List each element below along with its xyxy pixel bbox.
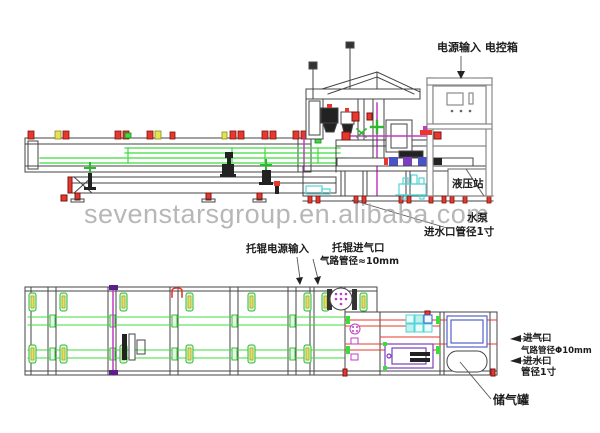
side-view <box>25 42 493 203</box>
label-roller-air-pipe: 气路管径≈10mm <box>319 255 399 267</box>
label-roller-power: 托辊电源输入 <box>246 242 309 255</box>
label-air-tank: 储气罐 <box>493 392 529 407</box>
pneumatic-grid <box>406 315 432 332</box>
machine-drawing-page: sevenstarsgroup.en.alibaba.com 电源输入 电控箱 … <box>0 0 600 433</box>
label-water-inlet-pipe: 管径1寸 <box>521 366 557 378</box>
label-roller-air-inlet: 托辊进气口 <box>332 241 385 254</box>
plan-view <box>25 285 497 376</box>
air-tank-oval <box>447 351 487 372</box>
control-box-top <box>447 316 487 347</box>
cutting-section <box>343 311 497 376</box>
watermark-text: sevenstarsgroup.en.alibaba.com <box>84 199 489 229</box>
label-water-pump-pipe: 进水口管径1寸 <box>424 225 495 238</box>
blower-circle <box>327 288 357 310</box>
saw-carriage <box>383 342 433 370</box>
infeed-conveyor <box>25 138 311 172</box>
machine-diagram: sevenstarsgroup.en.alibaba.com 电源输入 电控箱 … <box>0 0 600 433</box>
label-air-inlet: 进气口 <box>523 332 552 344</box>
label-water-inlet: 进水口 <box>523 355 552 367</box>
label-air-inlet-pipe: 气路管径Φ10mm <box>520 345 592 356</box>
motor-symbol <box>350 324 360 360</box>
label-water-pump: 水泵 <box>466 211 488 224</box>
label-power-input: 电源输入 电控箱 <box>437 40 518 54</box>
label-hydraulic-station: 液压站 <box>452 177 484 190</box>
